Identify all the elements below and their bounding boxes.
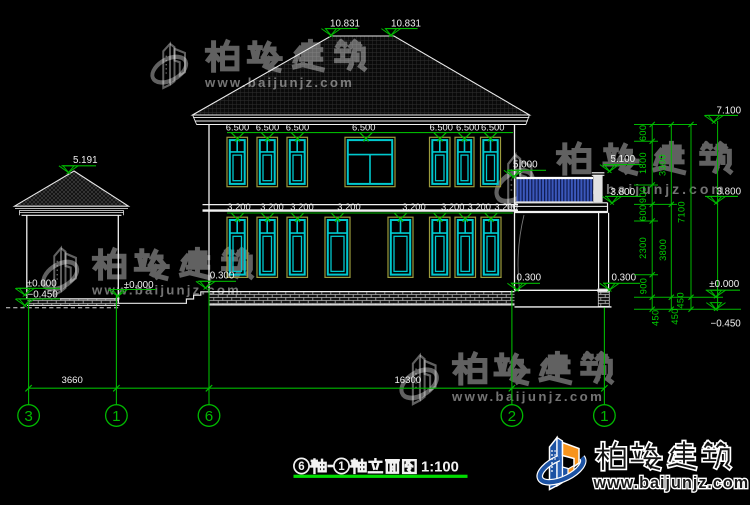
- svg-text:±0.000: ±0.000: [709, 279, 739, 290]
- svg-text:3.200: 3.200: [402, 201, 425, 212]
- svg-text:450: 450: [676, 292, 686, 309]
- svg-text:10.831: 10.831: [391, 18, 421, 29]
- svg-text:6.500: 6.500: [256, 121, 279, 132]
- svg-text:6: 6: [298, 461, 304, 473]
- svg-text:0.300: 0.300: [210, 271, 235, 282]
- svg-text:1:100: 1:100: [421, 460, 459, 476]
- svg-text:3.200: 3.200: [290, 201, 313, 212]
- svg-text:6.500: 6.500: [481, 121, 504, 132]
- svg-text:600: 600: [638, 125, 648, 142]
- svg-text:5.000: 5.000: [513, 159, 538, 170]
- svg-text:450: 450: [670, 308, 680, 325]
- svg-text:1: 1: [112, 408, 120, 425]
- svg-text:www.baijunjz.com: www.baijunjz.com: [593, 474, 750, 492]
- svg-text:3.200: 3.200: [227, 201, 250, 212]
- svg-text:7100: 7100: [676, 201, 686, 223]
- svg-text:900: 900: [638, 187, 648, 204]
- svg-text:0.300: 0.300: [517, 273, 542, 284]
- svg-text:3.200: 3.200: [441, 201, 464, 212]
- svg-text:6.500: 6.500: [430, 121, 453, 132]
- svg-text:900: 900: [639, 278, 649, 295]
- svg-text:600: 600: [638, 205, 648, 222]
- svg-text:3.200: 3.200: [260, 201, 283, 212]
- svg-text:6.500: 6.500: [286, 121, 309, 132]
- svg-text:10.831: 10.831: [330, 18, 360, 29]
- svg-text:3.200: 3.200: [494, 201, 517, 212]
- svg-text:3.200: 3.200: [337, 201, 360, 212]
- svg-text:www.baijunjz.com: www.baijunjz.com: [451, 389, 604, 404]
- svg-text:1800: 1800: [638, 152, 648, 174]
- svg-text:1: 1: [600, 408, 608, 425]
- svg-text:0.300: 0.300: [612, 273, 637, 284]
- svg-text:www.baijunjz.com: www.baijunjz.com: [204, 75, 354, 90]
- svg-text:5.100: 5.100: [611, 154, 636, 165]
- svg-text:3800: 3800: [658, 239, 668, 261]
- svg-text:6.500: 6.500: [226, 121, 249, 132]
- svg-text:16300: 16300: [394, 375, 421, 386]
- svg-text:2300: 2300: [638, 237, 648, 259]
- svg-text:450: 450: [651, 309, 661, 326]
- svg-text:6: 6: [205, 408, 213, 425]
- svg-text:5.191: 5.191: [73, 155, 98, 166]
- svg-text:3.200: 3.200: [468, 201, 491, 212]
- svg-text:2: 2: [508, 408, 516, 425]
- svg-text:3300: 3300: [657, 154, 667, 176]
- svg-text:6.500: 6.500: [456, 121, 479, 132]
- svg-text:3: 3: [24, 408, 32, 425]
- svg-text:1: 1: [338, 461, 345, 473]
- svg-text:−0.450: −0.450: [711, 319, 742, 330]
- svg-text:3660: 3660: [62, 375, 83, 386]
- svg-text:6.500: 6.500: [352, 121, 375, 132]
